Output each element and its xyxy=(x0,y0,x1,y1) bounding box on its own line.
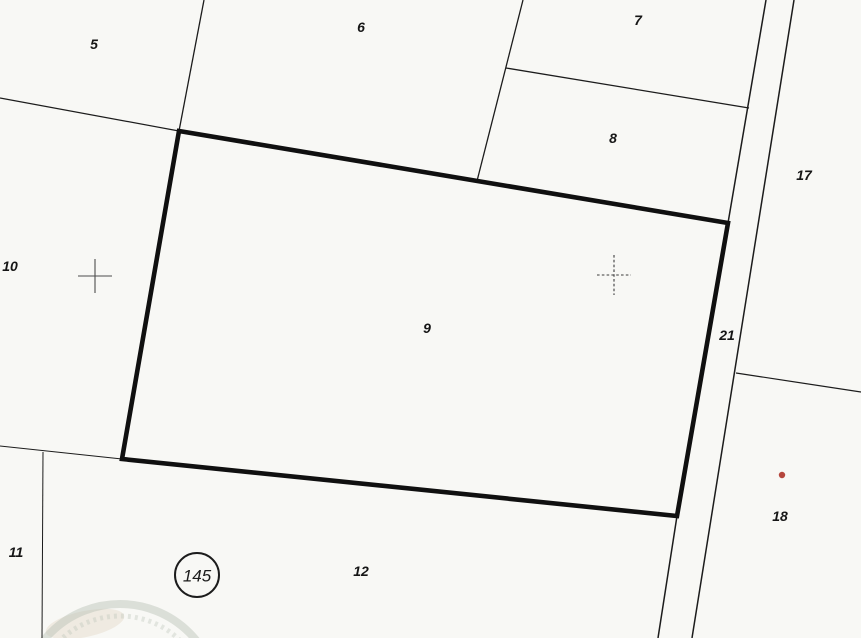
parcel-label-18: 18 xyxy=(772,508,788,524)
landmark-number: 145 xyxy=(183,567,212,586)
map-canvas: 56781017211811129145 xyxy=(0,0,861,638)
parcel-label-11: 11 xyxy=(9,544,24,560)
parcel-label-12: 12 xyxy=(353,563,369,579)
red-point-marker xyxy=(779,472,785,478)
parcel-label-7: 7 xyxy=(634,12,643,28)
parcel-label-17: 17 xyxy=(796,167,813,183)
parcel-label-21: 21 xyxy=(718,327,735,343)
cadastral-map-sheet: 56781017211811129145 xyxy=(0,0,861,638)
parcel-label-10: 10 xyxy=(2,258,18,274)
parcel-label-6: 6 xyxy=(357,19,365,35)
parcel-label-8: 8 xyxy=(609,130,617,146)
parcel-label-9: 9 xyxy=(423,320,431,336)
parcel-label-5: 5 xyxy=(90,36,98,52)
paper-background xyxy=(0,0,861,638)
